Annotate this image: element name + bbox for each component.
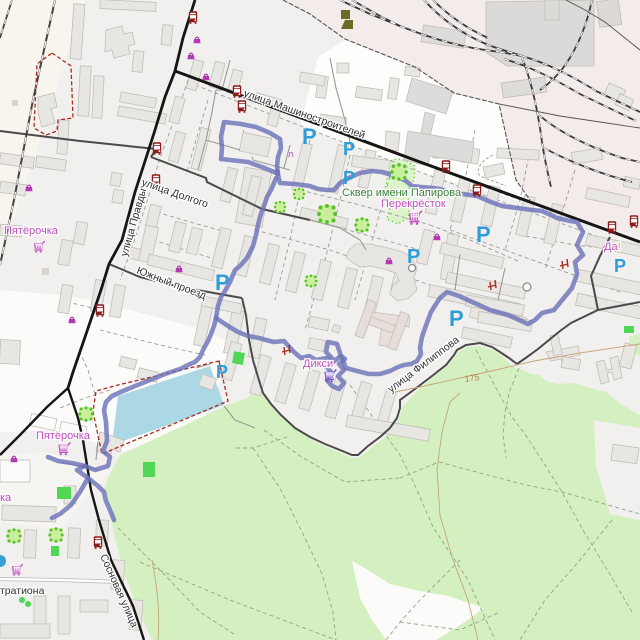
svg-text:P: P [476, 222, 491, 247]
svg-text:175: 175 [464, 372, 480, 384]
svg-text:Дикси: Дикси [303, 358, 333, 370]
svg-text:тратиона: тратиона [0, 585, 45, 597]
svg-text:Пятёрочка: Пятёрочка [4, 225, 59, 237]
svg-text:P: P [614, 256, 626, 276]
svg-text:P: P [343, 168, 355, 188]
svg-text:P: P [407, 246, 420, 268]
svg-text:л: л [288, 149, 293, 159]
svg-text:ка: ка [0, 492, 12, 504]
svg-text:P: P [343, 139, 355, 159]
svg-text:P: P [449, 306, 464, 331]
svg-text:Перекрёсток: Перекрёсток [381, 198, 446, 210]
svg-text:Пятёрочка: Пятёрочка [36, 430, 91, 442]
svg-text:Да!: Да! [604, 241, 621, 253]
svg-text:P: P [215, 270, 230, 295]
svg-text:P: P [302, 124, 317, 149]
svg-text:P: P [216, 362, 228, 382]
